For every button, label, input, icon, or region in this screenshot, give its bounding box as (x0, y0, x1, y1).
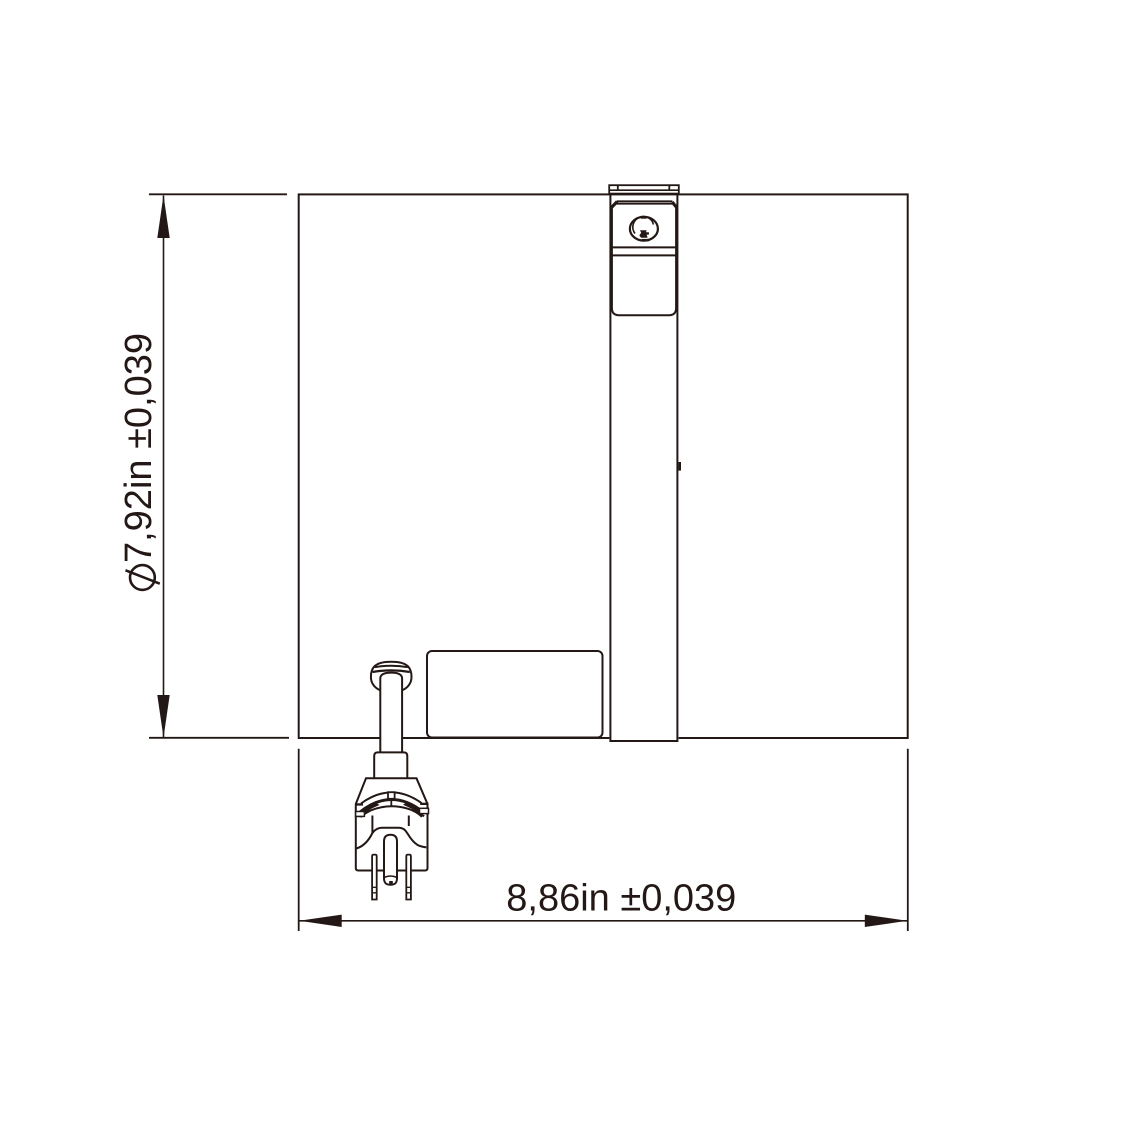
svg-text:8,86in ±0,039: 8,86in ±0,039 (506, 878, 736, 920)
svg-text:7,92in ±0,039: 7,92in ±0,039 (118, 333, 160, 563)
